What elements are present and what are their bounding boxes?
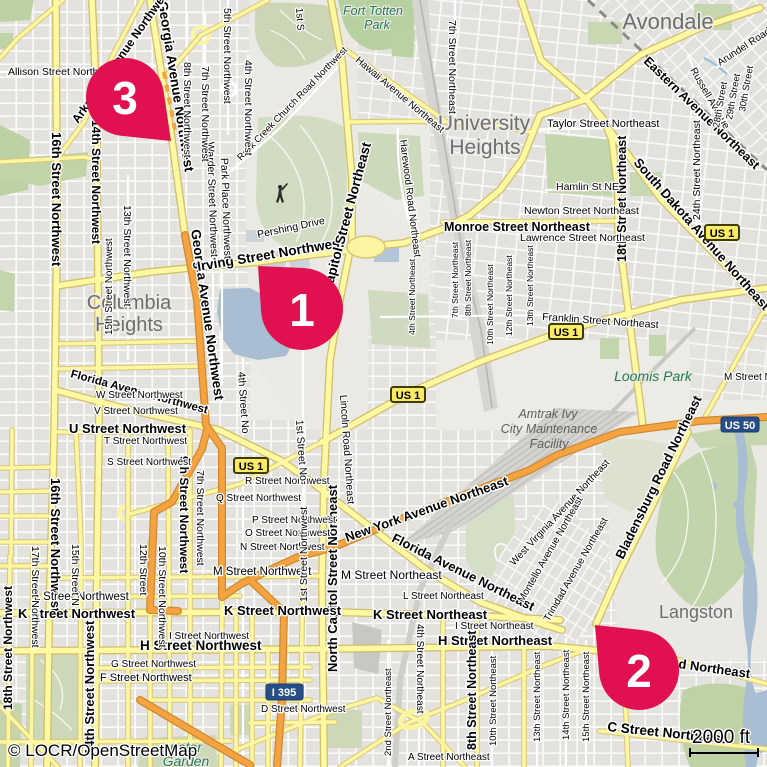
svg-text:24th Street Northeast: 24th Street Northeast — [691, 120, 703, 220]
svg-text:P Street Northwest: P Street Northwest — [252, 515, 336, 526]
svg-text:18th Street Northwest: 18th Street Northwest — [1, 586, 15, 710]
svg-text:15th Street Northeast: 15th Street Northeast — [581, 651, 592, 742]
svg-text:Fort Totten: Fort Totten — [343, 4, 403, 18]
svg-text:© LOCR/OpenStreetMap: © LOCR/OpenStreetMap — [8, 741, 197, 760]
svg-text:Avondale: Avondale — [622, 9, 713, 34]
svg-text:8th Street Northwest: 8th Street Northwest — [181, 62, 193, 158]
svg-text:A Street Northeast: A Street Northeast — [408, 752, 490, 763]
svg-text:Newton Street Northeast: Newton Street Northeast — [524, 205, 639, 217]
svg-text:5th Street Northwest: 5th Street Northwest — [221, 8, 233, 104]
svg-text:8th Street Northeast: 8th Street Northeast — [465, 630, 479, 750]
svg-text:14th Street Northwest: 14th Street Northwest — [89, 120, 103, 244]
svg-text:D Street Northwest: D Street Northwest — [261, 704, 346, 715]
svg-text:10th Street Northeast: 10th Street Northeast — [488, 655, 499, 746]
svg-text:Taylor Street Northeast: Taylor Street Northeast — [547, 118, 660, 130]
svg-text:4th Street Northeast: 4th Street Northeast — [407, 258, 417, 335]
svg-text:7th Street Northwest: 7th Street Northwest — [194, 470, 206, 566]
svg-text:7th Street Northeast: 7th Street Northeast — [446, 20, 458, 114]
svg-text:R Street Northwest: R Street Northwest — [245, 476, 330, 487]
svg-text:W Street Northwest: W Street Northwest — [96, 390, 183, 401]
svg-text:17th Street Northwest: 17th Street Northwest — [29, 546, 41, 648]
svg-text:7th Street Northeast: 7th Street Northeast — [450, 241, 460, 318]
svg-text:G Street Northwest: G Street Northwest — [111, 659, 196, 670]
svg-text:4th Street Northwest: 4th Street Northwest — [242, 60, 254, 156]
svg-text:L Street Northeast: L Street Northeast — [403, 591, 484, 602]
svg-text:8th Street Northeast: 8th Street Northeast — [463, 239, 473, 316]
svg-text:S Street Northwest: S Street Northwest — [107, 457, 191, 468]
svg-text:N Street Northwest: N Street Northwest — [240, 542, 325, 553]
svg-text:13th Street Northeast: 13th Street Northeast — [525, 245, 535, 326]
svg-text:2: 2 — [626, 645, 652, 697]
svg-text:12th Street Northeast: 12th Street Northeast — [504, 255, 514, 336]
svg-text:US 1: US 1 — [554, 327, 578, 339]
svg-text:Langston: Langston — [659, 602, 733, 622]
svg-text:I 395: I 395 — [272, 687, 296, 699]
svg-text:1st S: 1st S — [293, 7, 306, 31]
svg-text:14th Street Northeast: 14th Street Northeast — [561, 649, 572, 740]
svg-text:3: 3 — [112, 72, 138, 124]
svg-text:City Maintenance: City Maintenance — [501, 422, 598, 436]
svg-text:Park: Park — [364, 18, 390, 32]
svg-text:1: 1 — [289, 284, 315, 336]
svg-text:13th Street Northeast: 13th Street Northeast — [532, 651, 543, 742]
svg-text:T Street Northwest: T Street Northwest — [104, 436, 187, 447]
svg-text:Facility: Facility — [530, 437, 570, 451]
svg-text:7th Street Northwest: 7th Street Northwest — [199, 66, 211, 162]
svg-text:US 1: US 1 — [239, 461, 263, 473]
svg-text:4th Street Northeast: 4th Street Northeast — [414, 624, 425, 714]
svg-text:K Street Northwest: K Street Northwest — [224, 603, 342, 618]
svg-text:10th Street Northeast: 10th Street Northeast — [485, 264, 495, 345]
svg-text:V Street Northwest: V Street Northwest — [94, 406, 178, 417]
svg-text:1st Street Northwest: 1st Street Northwest — [298, 507, 310, 602]
svg-text:US 1: US 1 — [396, 390, 420, 402]
svg-text:12th Street: 12th Street — [137, 544, 149, 595]
svg-text:North Capitol Street Northeast: North Capitol Street Northeast — [325, 484, 340, 672]
svg-text:U Street Northwest: U Street Northwest — [69, 421, 187, 436]
svg-text:Lawrence Street Northeast: Lawrence Street Northeast — [520, 232, 645, 244]
svg-text:US 50: US 50 — [725, 420, 756, 432]
svg-text:I Street Northeast: I Street Northeast — [455, 621, 534, 632]
svg-text:US 1: US 1 — [710, 228, 734, 240]
svg-text:10th Street Northwest: 10th Street Northwest — [156, 546, 168, 648]
svg-text:Amtrak Ivy: Amtrak Ivy — [517, 407, 578, 421]
svg-text:Heights: Heights — [449, 136, 520, 159]
svg-text:15th Street Northwest: 15th Street Northwest — [104, 238, 115, 335]
svg-text:O Street Northwest: O Street Northwest — [245, 528, 330, 539]
svg-text:M Street N: M Street N — [724, 372, 767, 383]
svg-text:14th Street Northwest: 14th Street Northwest — [82, 620, 97, 755]
svg-text:16th Street Northwest: 16th Street Northwest — [49, 132, 64, 267]
svg-text:Hamlin St NE: Hamlin St NE — [556, 181, 619, 193]
svg-text:F Street Northwest: F Street Northwest — [100, 672, 192, 684]
svg-text:2nd Street Northeast: 2nd Street Northeast — [383, 668, 394, 756]
svg-text:15th Street N: 15th Street N — [69, 544, 81, 606]
svg-text:2000 ft: 2000 ft — [692, 727, 751, 748]
svg-text:Loomis Park: Loomis Park — [614, 368, 693, 384]
svg-text:I Street Northwest: I Street Northwest — [169, 631, 249, 642]
svg-text:K Street Northeast: K Street Northeast — [373, 607, 488, 622]
svg-text:M Street Northeast: M Street Northeast — [341, 568, 442, 582]
svg-text:Q Street Northwest: Q Street Northwest — [216, 493, 301, 504]
svg-text:H Street Northeast: H Street Northeast — [438, 633, 553, 648]
svg-text:13th Street Northwest: 13th Street Northwest — [121, 205, 133, 307]
svg-text:University: University — [438, 112, 531, 135]
svg-text:9th Street Northwest: 9th Street Northwest — [177, 456, 191, 573]
